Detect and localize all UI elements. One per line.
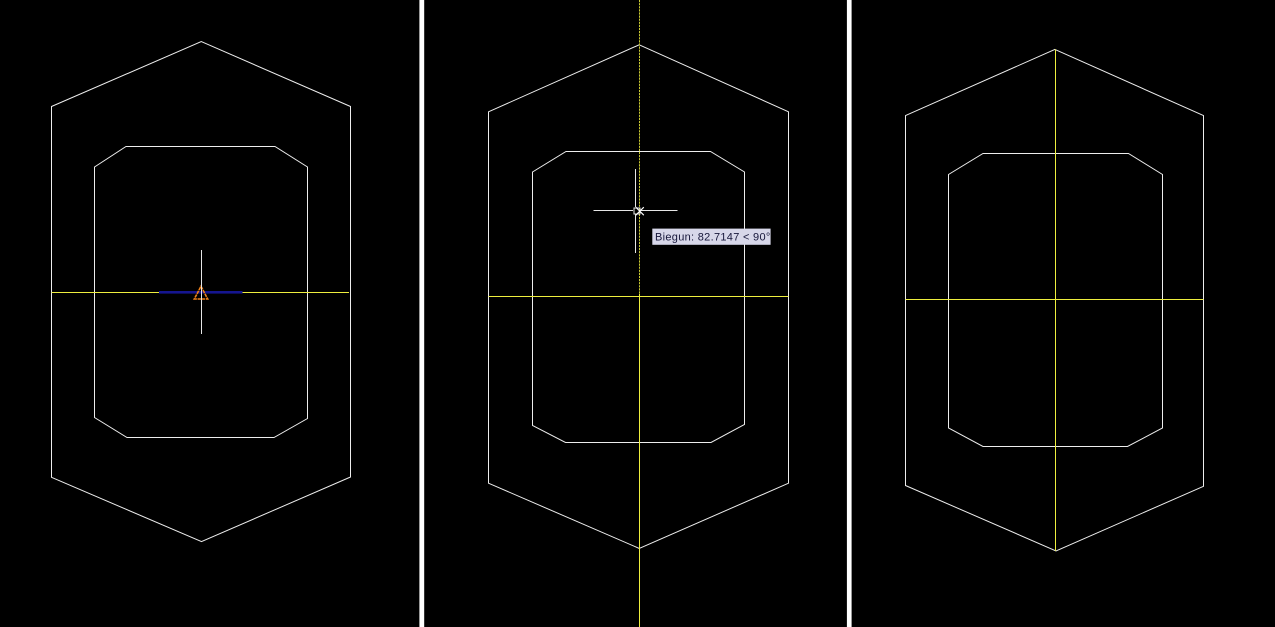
svg-text:Biegun: 82.7147 < 90°: Biegun: 82.7147 < 90° <box>655 232 771 244</box>
